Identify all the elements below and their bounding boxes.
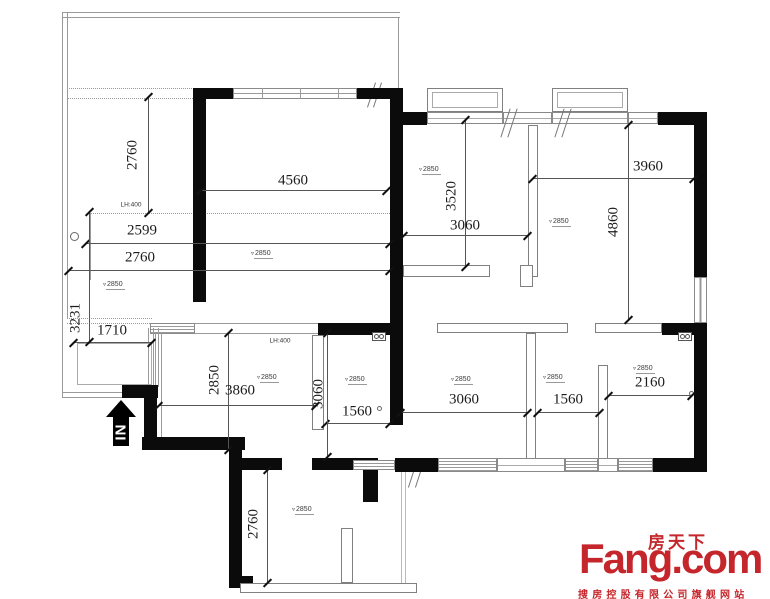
partition-wall [528,125,538,277]
window-divider [300,88,301,99]
wall [390,99,403,325]
dim-line-room-mid-height [465,120,466,267]
pipe-line [401,470,402,583]
wall-line [195,333,318,334]
entry-arrow: IN [106,400,136,446]
window [565,458,598,472]
wall [694,323,707,458]
wall [395,458,438,472]
kitchen-left-line-2 [161,333,162,437]
wall [694,112,707,277]
entry-arrow-head-icon [106,400,136,417]
vent-icon [372,332,386,341]
fang-logo: 房天下 Fang.com 搜房控股有限公司旗舰网站 [576,527,770,597]
wall [144,385,157,445]
window-divider [338,88,339,99]
entry-arrow-shaft: IN [113,417,129,446]
dim-line-bath1-width [325,423,390,424]
dim-label-bath2-width: 1560 [553,392,583,409]
dim-label-left-row1: 2599 [127,223,157,240]
dim-line-terrace-height [148,97,149,213]
entry-arrow-label: IN [113,423,129,440]
note-lh-kitchen: LH:400 [270,338,291,345]
wall [403,112,427,125]
wall [357,88,403,99]
dim-label-hall-width: 3060 [449,392,479,409]
entry-door-frame [153,328,154,387]
dim-label-entry: 1710 [97,323,127,340]
drain-symbol [70,232,79,241]
dim-line-room-right-height [628,125,629,320]
window [353,460,395,470]
dim-label-room-mid-height: 3520 [444,181,461,211]
terrace-left-outer-line [62,12,63,397]
dim-line-bath2-width [537,412,600,413]
partition-wall [437,323,568,333]
sliding-door-track [150,323,195,334]
floor-plan: 4560 3060 3960 2599 2760 1710 3860 1560 … [0,0,770,599]
level-mark: ▿2850 [419,166,441,173]
dim-line-bottom-room-height [267,470,268,583]
wall [653,458,707,472]
dim-label-left-row2: 2760 [125,250,155,267]
dim-label-room-right-height: 4860 [606,207,623,237]
partition-wall [341,528,353,583]
wall-outline [497,458,565,472]
window [618,458,653,472]
dim-line-left-row2 [68,270,390,271]
pipe-line-2 [405,470,406,583]
wall [363,470,378,502]
wall [229,458,282,470]
boundary-bottom-line-2 [62,397,122,398]
partition-wall [595,323,662,333]
partition-wall [520,265,533,287]
dim-label-bath1-width: 1560 [342,404,372,421]
terrace-top-outer-line [62,12,400,13]
window [694,277,707,323]
entry-porch-outline [77,343,152,385]
level-mark: ▿2850 [103,281,125,288]
window-sill [552,112,628,124]
entry-door-frame [148,328,149,387]
window [438,458,497,472]
level-mark: ▿2850 [543,374,565,381]
level-mark: ▿2850 [292,506,314,513]
dim-label-left-column: 3231 [68,303,85,333]
dim-label-room-mid-width: 3060 [450,218,480,235]
bay-window-inner [432,92,498,108]
wall-line [195,323,318,324]
dim-line-living-width [200,190,387,191]
window-divider [262,88,263,99]
dim-label-room-right-width: 3960 [633,159,663,176]
logo-wordmark: Fang.com [579,535,761,583]
terrace-top-inner-line [62,17,400,18]
level-mark: ▿2850 [257,374,279,381]
dim-label-bottom-room-height: 2760 [246,509,263,539]
dim-label-terrace-height: 2760 [125,140,142,170]
terrace-bottom-dotted-line-2 [67,98,193,99]
vent-icon [678,332,692,341]
level-mark: ▿2850 [345,376,367,383]
terrace-right-line [398,17,399,88]
level-mark: ▿2850 [251,250,273,257]
window-sill [503,112,552,124]
dim-label-room-br-width: 2160 [635,375,665,392]
dim-label-kitchen-height: 2850 [207,365,224,395]
level-mark: ▿2850 [451,376,473,383]
wall [229,450,242,588]
dim-line-entry [73,342,152,343]
left-row-dotted-line [88,213,390,214]
dim-label-bath1-height: 3060 [311,379,328,409]
dim-line-room-br-width [608,395,692,396]
dim-line-hall-width [400,412,528,413]
level-mark: ▿2850 [633,365,655,372]
level-mark: ▿2850 [549,218,571,225]
boundary-bottom-line [62,392,122,393]
partition-wall [403,265,490,277]
dim-line-room-right-width [532,178,694,179]
bay-window-inner [557,92,623,108]
dim-label-living-width: 4560 [278,173,308,190]
dim-line-kitchen-width [158,405,316,406]
dim-line-left-column [89,212,90,342]
wall [193,88,233,99]
partition-wall [526,333,536,460]
logo-tagline: 搜房控股有限公司旗舰网站 [578,586,748,599]
knob-circle [377,406,382,411]
entry-door-frame [158,328,159,387]
wall-outline [598,458,618,472]
dim-line-left-row1 [85,243,390,244]
dim-label-kitchen-width: 3860 [225,383,255,400]
note-lh-left: LH:400 [121,202,142,209]
